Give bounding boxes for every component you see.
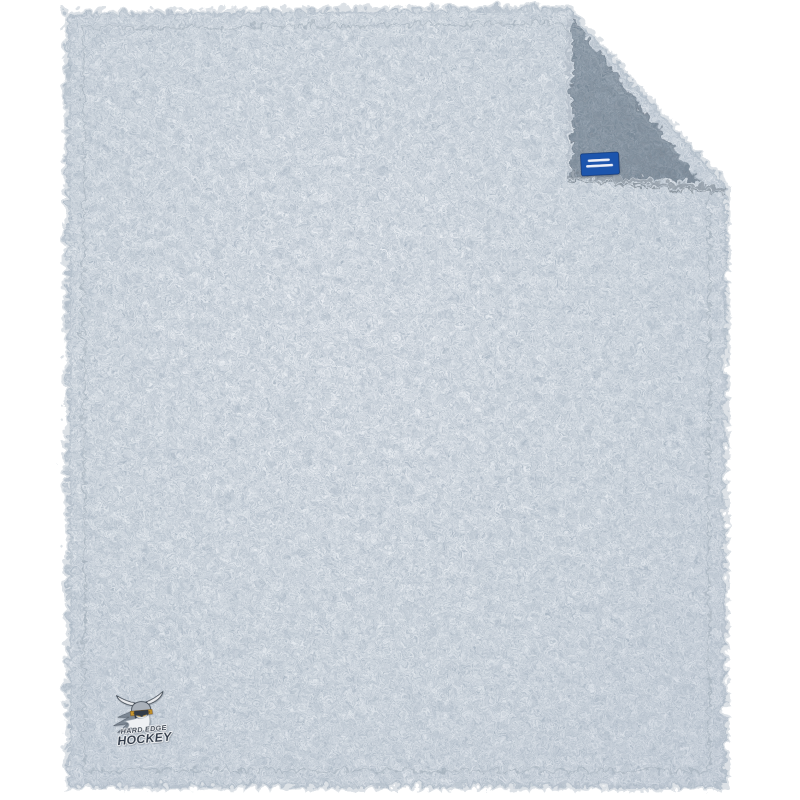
product-photo-canvas: HARD EDGE HOCKEY: [0, 0, 800, 800]
blanket-product-photo: HARD EDGE HOCKEY: [0, 0, 800, 800]
brand-tag-body: [580, 152, 619, 176]
texture-grain: [0, 0, 800, 800]
blanket-body: [0, 0, 800, 800]
brand-tag: [580, 152, 619, 176]
